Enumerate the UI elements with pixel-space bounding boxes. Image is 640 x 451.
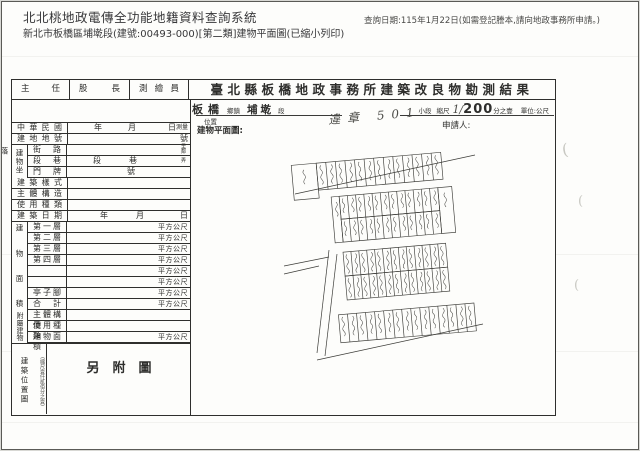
survey-form-frame: 主任 股長 測繪員 臺北縣板橋地政事務所建築改良物勘測結果 板橋 鄉鎮 埔墘 段… (11, 79, 556, 416)
segment-label: 段 (93, 156, 101, 166)
alley-tiny-suffix: 弄 (181, 159, 188, 164)
survey-suffix: 測量 (176, 123, 188, 133)
row-label: 建地地號 (12, 134, 68, 144)
row-label: 建築日期 (12, 211, 68, 221)
row-label: 亭子腳 (28, 288, 67, 298)
door-number-suffix: 號 (127, 167, 135, 177)
scanned-document-page: ( ( ( 北北桃地政電傳全功能地籍資料查詢系統 新北市板橋區埔墘段(建號:00… (1, 1, 639, 450)
row-floor-2: 第二層 平方公尺 (28, 233, 190, 244)
area-unit: 平方公尺 (158, 288, 188, 298)
group-building-area: 建物面積 第一層 平方公尺 第二層 平方公尺 第三層 平方公尺 (12, 222, 190, 310)
approval-cell-chief: 主任 (12, 80, 70, 99)
row-label: 街路 (28, 145, 67, 155)
row-attached-area: 建物面積 平方公尺 (28, 332, 190, 343)
row-building-style: 建築樣式 (12, 178, 190, 189)
row-survey-date: 中華民國 年 月 日 測量 (12, 123, 190, 134)
row-floor-blank: 平方公尺 (28, 266, 190, 277)
scan-artifact-line (2, 56, 638, 57)
row-door-plate: 門牌 號 (28, 167, 190, 178)
row-label: 使用種類 (12, 200, 68, 210)
form-title: 臺北縣板橋地政事務所建築改良物勘測結果 (189, 80, 555, 99)
row-label: 第三層 (28, 244, 67, 254)
row-value: 年 月 日 測量 (68, 123, 190, 133)
row-label: 段巷 (28, 156, 67, 166)
row-attached-structure: 主體構造 (28, 310, 190, 321)
row-lot-number: 建地地號 號 (12, 134, 190, 145)
pencil-mark: ( (561, 140, 570, 160)
approval-cell-section-chief: 股長 (70, 80, 130, 99)
row-label: 主體構造 (28, 310, 67, 320)
row-value: 號 (68, 134, 190, 144)
document-subtitle: 新北市板橋區埔墘段(建號:00493-000)[第二類]建物平面圖(已縮小列印) (23, 25, 344, 40)
row-total: 合計 平方公尺 (28, 299, 190, 310)
row-floor-blank: 平方公尺 (28, 277, 190, 288)
day-label: 日 (168, 123, 176, 133)
row-usage-type: 使用種類 (12, 200, 190, 211)
row-lane: 段巷 段 巷 弄 (28, 156, 190, 167)
area-unit: 平方公尺 (158, 277, 188, 287)
group-building-location: 建物坐落 街路 里鄰 段巷 段 巷 弄 (12, 145, 190, 178)
row-label: 建物面積 (28, 332, 67, 342)
row-label: 中華民國 (12, 123, 68, 133)
scan-artifact-line (2, 422, 638, 423)
cadastral-sketch-map (191, 100, 555, 415)
group-attached-building: 附屬建物 主體構造 使用種類 建物面積 平方公尺 (12, 310, 190, 343)
area-unit: 平方公尺 (158, 222, 188, 232)
lot-number-suffix: 號 (180, 134, 188, 144)
row-label: 第四層 (28, 255, 67, 265)
row-attached-usage: 使用種類 (28, 321, 190, 332)
row-floor-3: 第三層 平方公尺 (28, 244, 190, 255)
row-build-date: 建築日期 年 月 日 (12, 211, 190, 222)
row-label: 建築樣式 (12, 178, 68, 188)
group-label: 附屬建物 (12, 310, 28, 343)
row-label: 第二層 (28, 233, 67, 243)
area-unit: 平方公尺 (158, 255, 188, 265)
year-label: 年 (94, 123, 102, 133)
building-data-table: 中華民國 年 月 日 測量 建地地號 號 建物坐落 街路 (12, 122, 190, 343)
area-unit: 平方公尺 (158, 244, 188, 254)
location-map-label: 建築位置圖 (17, 344, 30, 414)
year-label: 年 (100, 211, 108, 221)
pencil-mark: ( (578, 194, 583, 209)
location-map-scale-note: (縮尺壹仟貳佰分之壹) (30, 344, 47, 414)
area-unit: 平方公尺 (158, 332, 188, 342)
row-label: 使用種類 (28, 321, 67, 331)
system-title: 北北桃地政電傳全功能地籍資料查詢系統 (23, 7, 257, 26)
row-label: 合計 (28, 299, 67, 309)
row-street: 街路 里鄰 (28, 145, 190, 156)
row-floor-1: 第一層 平方公尺 (28, 222, 190, 233)
month-label: 月 (128, 123, 136, 133)
approval-header-row: 主任 股長 測繪員 臺北縣板橋地政事務所建築改良物勘測結果 (12, 80, 555, 100)
day-label: 日 (180, 211, 188, 221)
query-date: 查詢日期:115年1月22日(如需登記謄本,請向地政事務所申請。) (364, 14, 600, 26)
area-unit: 平方公尺 (158, 299, 188, 309)
see-attached-figure-text: 另附圖 (73, 357, 164, 376)
row-label (28, 266, 67, 276)
group-label: 建物面積 (12, 222, 28, 310)
building-location-map-box: 建築位置圖 (縮尺壹仟貳佰分之壹) 另附圖 (12, 343, 191, 414)
row-main-structure: 主體構造 (12, 189, 190, 200)
row-floor-4: 第四層 平方公尺 (28, 255, 190, 266)
approval-cell-surveyor: 測繪員 (130, 80, 189, 99)
area-unit: 平方公尺 (158, 233, 188, 243)
row-arcade: 亭子腳 平方公尺 (28, 288, 190, 299)
pencil-mark: ( (574, 278, 579, 293)
row-label (28, 277, 67, 287)
group-label: 建物坐落 (12, 145, 28, 178)
street-tiny-suffix: 里鄰 (181, 145, 188, 155)
lane-label: 巷 (129, 156, 137, 166)
area-unit: 平方公尺 (158, 266, 188, 276)
row-label: 第一層 (28, 222, 67, 232)
month-label: 月 (136, 211, 144, 221)
row-label: 主體構造 (12, 189, 68, 199)
row-label: 門牌 (28, 167, 67, 177)
